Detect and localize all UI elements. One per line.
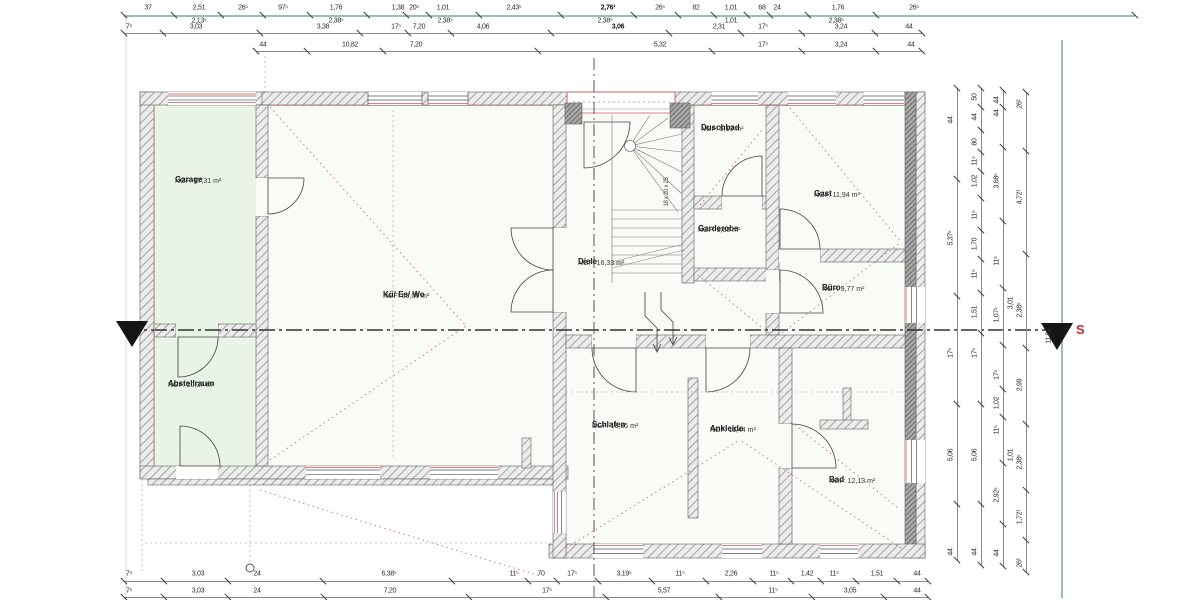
room-text: NGF: 16,35 m² <box>592 423 638 430</box>
dim-label: 97⁵ <box>278 5 288 12</box>
dim-label: 3,03 <box>192 571 204 578</box>
dim-label: 7⁵ <box>126 588 132 595</box>
room-text: NGF: 3,80 m² <box>698 227 740 234</box>
dim-label: 5,37⁵ <box>948 230 955 245</box>
dim-label: 26⁵ <box>909 5 919 12</box>
dim-label: 7,20 <box>410 42 422 49</box>
dim-label: 26¹ <box>1017 558 1024 567</box>
dim-label: 1,02 <box>972 175 979 187</box>
dim-label: 11⁵ <box>972 156 979 165</box>
dim-label: 24 <box>253 571 260 578</box>
dim-label: 80 <box>972 138 979 145</box>
dim-label: 11⁵ <box>972 269 979 278</box>
dim-label: 11⁵ <box>972 210 979 219</box>
dim-label: 3,24 <box>835 42 847 49</box>
dim-label: 1,01 <box>725 18 737 25</box>
dim-label: 3,38 <box>317 24 329 31</box>
dim-label: 11⁵ <box>994 256 1001 265</box>
dim-label: 7,20 <box>384 588 396 595</box>
room-text: NGF: 65,08 m² <box>383 293 429 300</box>
room-text: NGF: 11,94 m² <box>814 192 860 199</box>
dim-label: 3,03 <box>192 588 204 595</box>
dim-label: 7⁵ <box>126 24 132 31</box>
dim-label: 10,82 <box>342 42 358 49</box>
dim-label: 44 <box>913 571 920 578</box>
dim-label: 17⁵ <box>948 348 955 358</box>
dim-label: 2,76¹ <box>601 5 615 12</box>
dim-label: 2,26 <box>725 571 737 578</box>
dim-label: 26⁵ <box>655 5 665 12</box>
dim-label: 1,01 <box>725 5 737 12</box>
dim-label: 82 <box>692 5 699 12</box>
dim-label: 1,01 <box>437 5 449 12</box>
dim-label: 17⁵ <box>758 24 768 31</box>
dim-label: 6,38⁵ <box>381 571 396 578</box>
dim-label: 20⁵ <box>409 5 419 12</box>
dim-label: 3,68⁵ <box>994 173 1001 188</box>
dim-label: 17⁵ <box>567 571 577 578</box>
dim-line <box>957 88 958 560</box>
dim-label: 11⁵ <box>769 571 778 578</box>
dim-label: 2,38⁵ <box>328 18 343 25</box>
dim-label: 1,76 <box>330 5 342 12</box>
dim-label: 5,32 <box>654 42 666 49</box>
dim-label: 11⁵ <box>768 588 777 595</box>
dim-label: 26⁵ <box>238 5 248 12</box>
dim-label: 2,38⁵ <box>1017 454 1024 469</box>
room-text: NGF: 12,13 m² <box>829 478 875 485</box>
dim-line <box>1003 90 1004 566</box>
dim-label: 1,02 <box>994 397 1001 409</box>
dim-line <box>124 15 1135 17</box>
dim-line <box>124 597 928 598</box>
room-text: NGF: 10,37 m² <box>168 382 214 389</box>
dim-label: 2,38⁵ <box>437 18 452 25</box>
dim-label: 3,06 <box>612 24 624 31</box>
dim-label: 1,70 <box>972 238 979 250</box>
dim-label: 11⁵ <box>509 571 518 578</box>
dim-label: 1,38 <box>392 5 404 12</box>
dim-label: 3,24 <box>835 24 847 31</box>
dim-label: 3,19⁵ <box>616 571 631 578</box>
dim-label: 2,38⁵ <box>1017 302 1024 317</box>
room-text: NGF: 5,13 m² <box>701 126 743 133</box>
dim-label: 1,01 <box>1008 449 1015 461</box>
dim-label: 2,92⁵ <box>994 487 1001 502</box>
dim-label: 3,01 <box>1008 297 1015 309</box>
dim-line <box>1026 92 1027 572</box>
dim-label: 3,03 <box>190 24 202 31</box>
room-text: NGF: 11,44 m² <box>710 427 756 434</box>
section-label: S <box>1076 322 1085 337</box>
dim-label: 11⁵ <box>675 571 684 578</box>
dim-line <box>981 88 982 565</box>
dim-label: 1,07⁵ <box>994 307 1001 322</box>
dim-label: 24 <box>773 5 780 12</box>
dim-label: 1,51 <box>972 306 979 318</box>
dim-label: 44 <box>948 548 955 555</box>
dim-label: 17⁵ <box>972 348 979 358</box>
dim-label: 17⁵ <box>758 42 768 49</box>
dim-label: 44 <box>948 116 955 123</box>
room-text: NGF: 17,31 m² <box>175 178 221 185</box>
dim-label: 44 <box>907 42 914 49</box>
dim-label: 2,31 <box>713 24 725 31</box>
dim-label: 2,51 <box>193 5 205 12</box>
dim-label: 44 <box>905 24 912 31</box>
dim-label: 17⁵ <box>994 370 1001 380</box>
floor-plan-canvas: GarageNGF: 17,31 m²Kü/ Es/ WoNGF: 65,08 … <box>0 0 1200 600</box>
dim-line <box>256 51 922 52</box>
dim-label: 11,99 <box>1046 328 1053 344</box>
dim-label: 11⁵ <box>829 571 838 578</box>
dim-label: 3,05 <box>844 588 856 595</box>
dim-label: 44 <box>259 42 266 49</box>
dim-label: 17⁵ <box>542 588 552 595</box>
dim-label: 37 <box>144 5 151 12</box>
dim-label: 4,06 <box>477 24 489 31</box>
dim-label: 5,06 <box>948 449 955 461</box>
dim-label: 1,51 <box>871 571 883 578</box>
dim-label: 5,57 <box>658 588 670 595</box>
dim-label: 5,06 <box>972 449 979 461</box>
dim-label: 44 <box>913 588 920 595</box>
dim-label: 2,99 <box>1017 379 1024 391</box>
dim-label: 1,72¹ <box>1017 510 1024 524</box>
dim-label: 68 <box>758 5 765 12</box>
dim-label: 50 <box>972 93 979 100</box>
dim-label: 1,76 <box>832 5 844 12</box>
dim-label: 7⁵ <box>126 571 132 578</box>
dim-label: 44 <box>972 548 979 555</box>
room-text: NGF: 9,77 m² <box>822 286 864 293</box>
dim-line <box>124 581 928 582</box>
dim-label: 44 <box>972 113 979 120</box>
dim-label: 11⁵ <box>994 425 1001 434</box>
dim-label: 17⁵ <box>391 24 401 31</box>
stairs-dim: 18 x 20 x 25 <box>664 177 670 206</box>
dim-label: 1,42 <box>801 571 813 578</box>
dim-label: 2,43⁵ <box>506 5 521 12</box>
dim-label: 7,20 <box>413 24 425 31</box>
dim-label: 44 <box>994 96 1001 103</box>
dim-label: 70 <box>537 571 544 578</box>
dim-label: 44 <box>994 549 1001 556</box>
dim-label: 24 <box>253 588 260 595</box>
dim-label: 44 <box>994 109 1001 116</box>
room-text: NGF: 16,33 m² <box>578 260 624 267</box>
dim-label: 4,72¹ <box>1017 190 1024 204</box>
dim-label: 2,38⁵ <box>597 18 612 25</box>
dim-label: 26¹ <box>1017 99 1024 108</box>
